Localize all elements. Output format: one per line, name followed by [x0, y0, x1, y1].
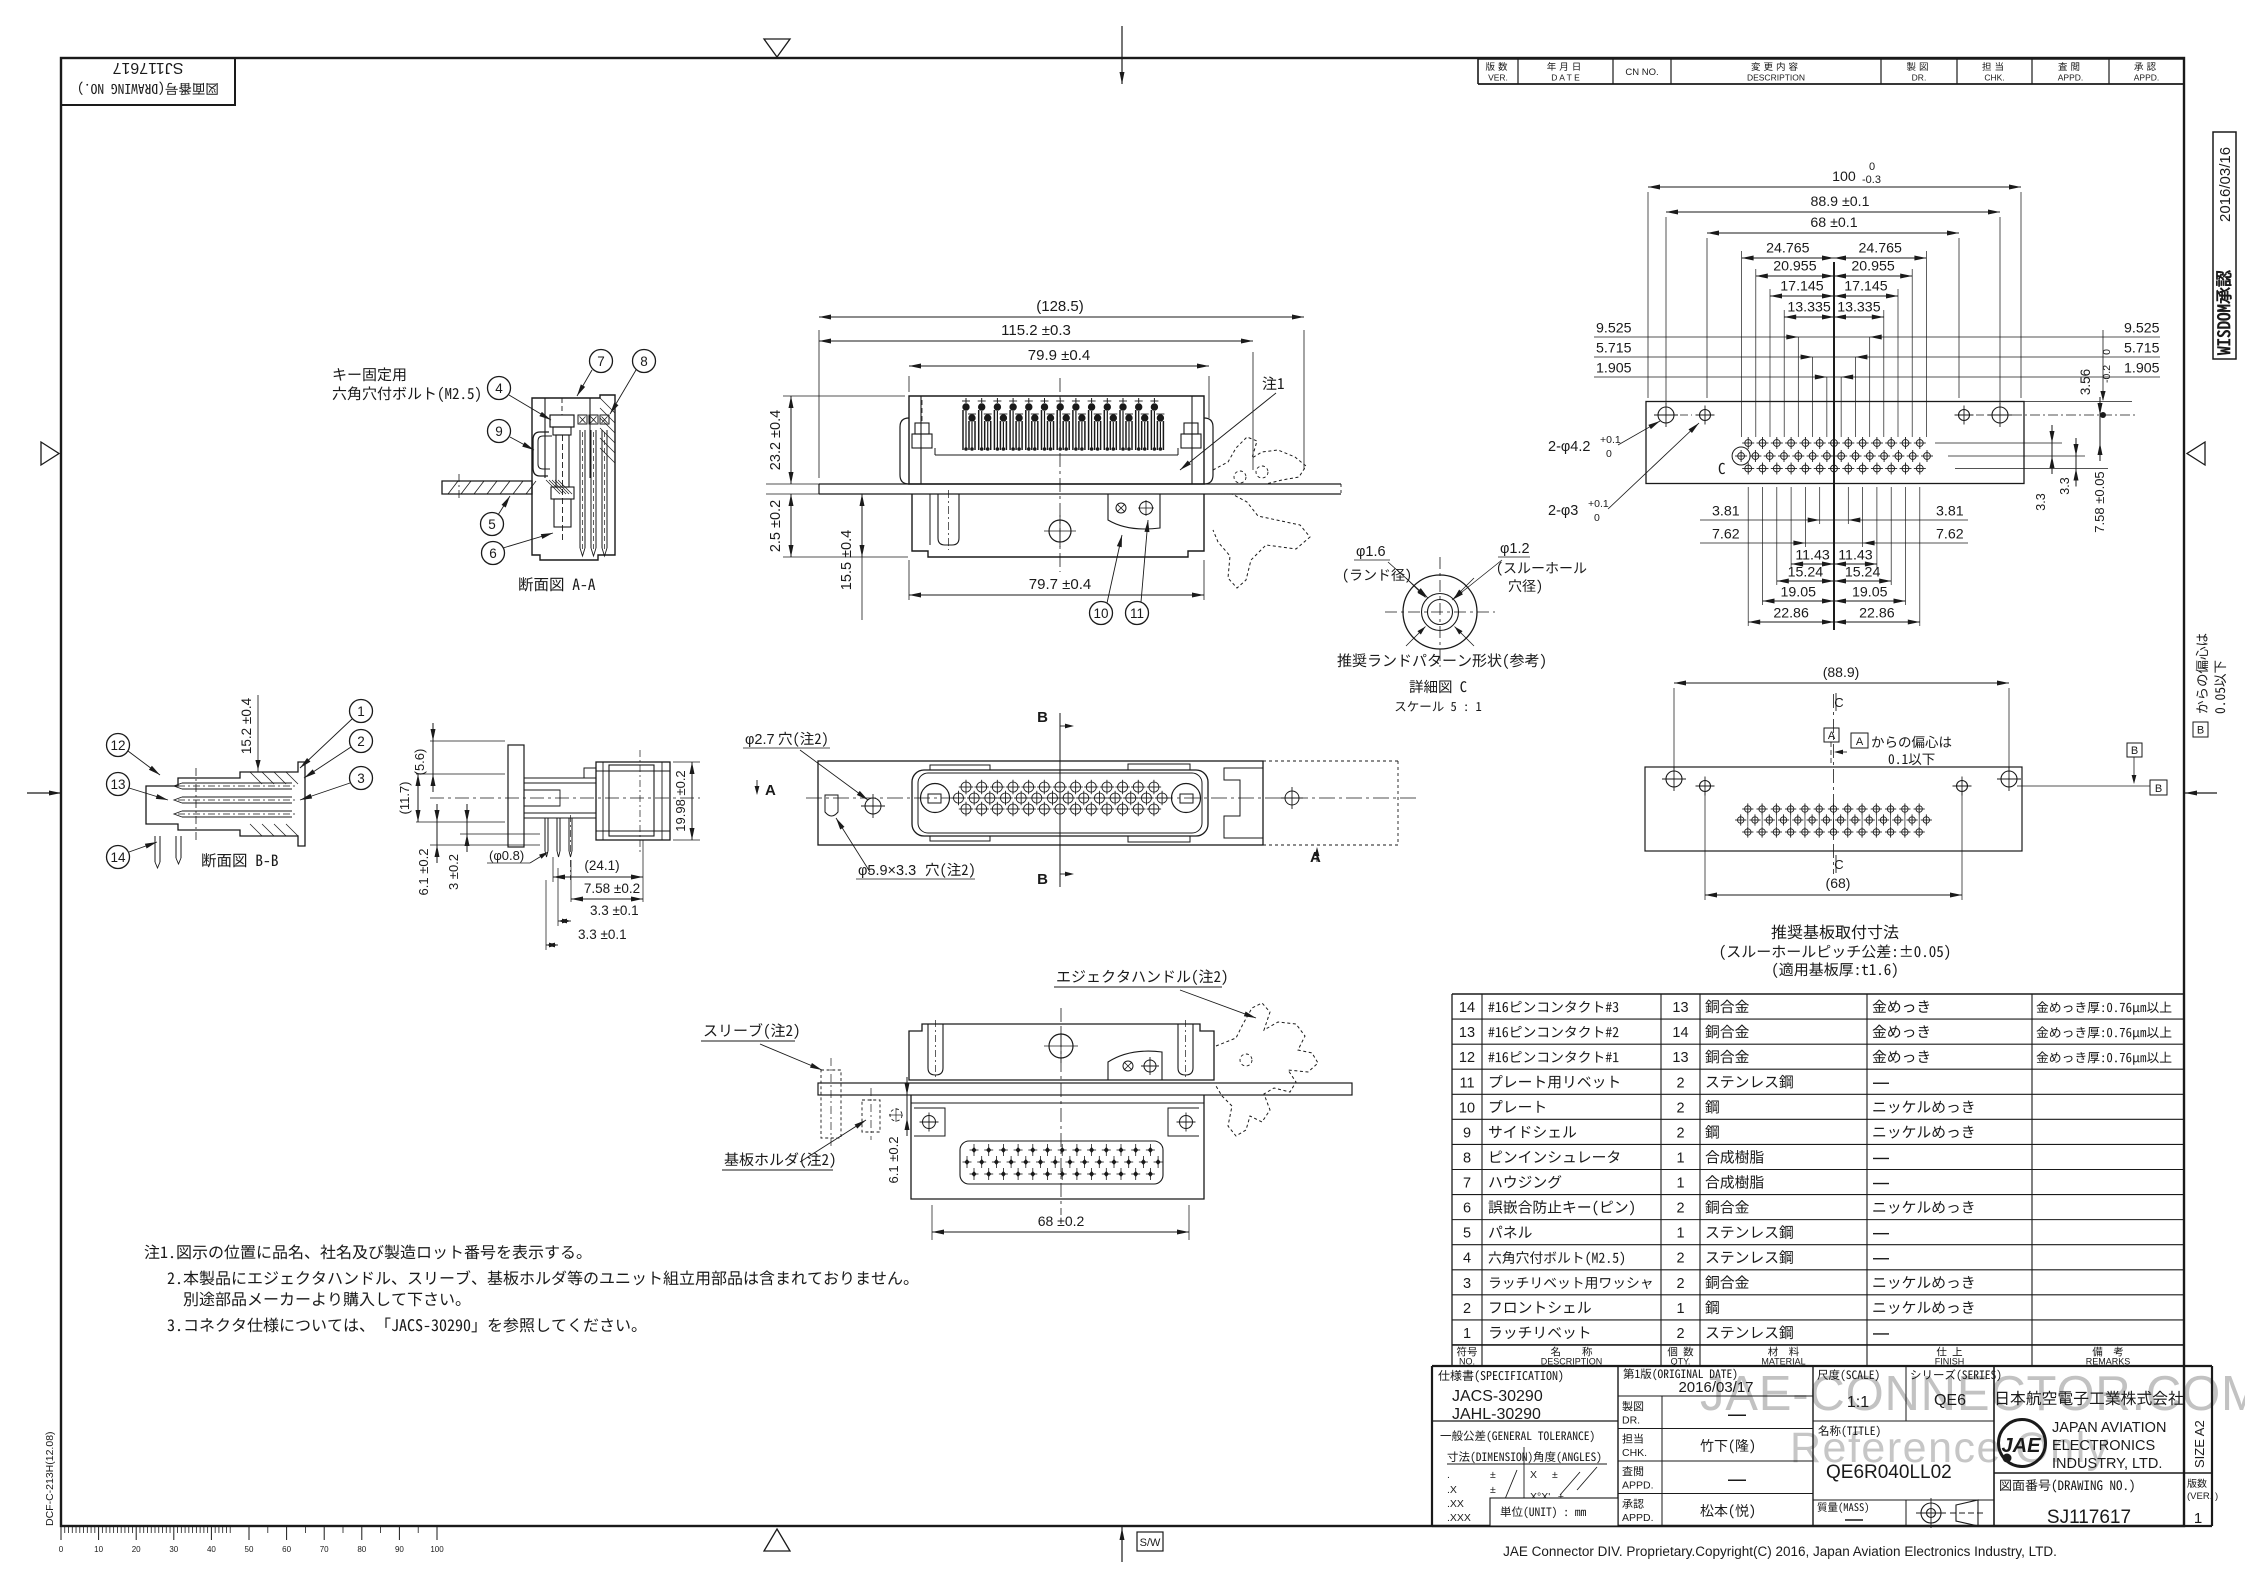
svg-text:90: 90 — [395, 1545, 404, 1554]
svg-text:3.81: 3.81 — [1712, 504, 1740, 520]
svg-text:14: 14 — [1672, 1025, 1688, 1041]
svg-text:JACS-30290: JACS-30290 — [1452, 1388, 1543, 1405]
svg-text:2016/03/17: 2016/03/17 — [1678, 1379, 1753, 1396]
svg-text:2-φ4.2: 2-φ4.2 — [1548, 439, 1590, 455]
svg-text:23.2 ±0.4: 23.2 ±0.4 — [768, 410, 784, 470]
svg-text:1: 1 — [1676, 1176, 1684, 1192]
svg-text:2: 2 — [1463, 1301, 1471, 1317]
svg-text:22.86: 22.86 — [1859, 606, 1895, 622]
svg-text:88.9 ±0.1: 88.9 ±0.1 — [1810, 194, 1869, 210]
svg-text:79.9 ±0.4: 79.9 ±0.4 — [1028, 347, 1090, 364]
svg-text:30: 30 — [169, 1545, 178, 1554]
svg-text:3.56: 3.56 — [2078, 369, 2093, 395]
svg-text:B: B — [2155, 783, 2162, 795]
svg-text:5: 5 — [488, 517, 496, 532]
svg-text:.: . — [1447, 1469, 1450, 1481]
svg-text:A: A — [1828, 730, 1836, 742]
svg-text:DR.: DR. — [1912, 73, 1927, 83]
svg-text:.XXX: .XXX — [1447, 1512, 1471, 1524]
svg-text:9.525: 9.525 — [2124, 321, 2160, 337]
svg-text:2016/03/16: 2016/03/16 — [2217, 147, 2234, 222]
svg-text:2: 2 — [1676, 1276, 1684, 1292]
svg-text:10: 10 — [94, 1545, 103, 1554]
svg-text:2: 2 — [1676, 1100, 1684, 1116]
svg-text:B: B — [2131, 745, 2138, 757]
svg-text:(11.7): (11.7) — [397, 782, 412, 815]
svg-text:SJ117617: SJ117617 — [112, 59, 183, 76]
svg-text:100: 100 — [1832, 169, 1856, 185]
svg-text:0: 0 — [1606, 448, 1612, 460]
svg-text:2: 2 — [357, 734, 365, 749]
svg-text:φ1.6: φ1.6 — [1356, 544, 1386, 560]
svg-text:CN NO.: CN NO. — [1625, 67, 1658, 78]
svg-text:.XX: .XX — [1447, 1498, 1464, 1510]
svg-text:1: 1 — [1676, 1301, 1684, 1317]
svg-text:1: 1 — [1676, 1150, 1684, 1166]
svg-text:24.765: 24.765 — [1858, 241, 1902, 257]
svg-text:±: ± — [1490, 1469, 1496, 1481]
svg-text:4: 4 — [495, 381, 503, 396]
svg-text:40: 40 — [207, 1545, 216, 1554]
svg-text:22.86: 22.86 — [1773, 606, 1809, 622]
svg-text:14: 14 — [110, 850, 126, 865]
svg-text:1: 1 — [1676, 1226, 1684, 1242]
svg-text:SIZE A2: SIZE A2 — [2192, 1420, 2207, 1468]
svg-text:11.43: 11.43 — [1795, 548, 1830, 564]
svg-text:4: 4 — [1463, 1251, 1471, 1267]
svg-text:3.3 ±0.1: 3.3 ±0.1 — [590, 903, 639, 918]
svg-text:X: X — [1530, 1469, 1537, 1481]
svg-text:13: 13 — [1672, 1050, 1688, 1066]
svg-text:VER.: VER. — [1488, 73, 1508, 83]
svg-text:11: 11 — [1130, 606, 1144, 621]
svg-text:2: 2 — [1676, 1251, 1684, 1267]
svg-text:INDUSTRY, LTD.: INDUSTRY, LTD. — [2052, 1456, 2162, 1472]
svg-text:3.3: 3.3 — [2034, 493, 2048, 510]
svg-text:ELECTRONICS: ELECTRONICS — [2052, 1438, 2155, 1454]
svg-text:2.5 ±0.2: 2.5 ±0.2 — [768, 500, 784, 552]
svg-text:APPD.: APPD. — [2058, 73, 2084, 83]
svg-text:JAE Connector DIV. Proprietary: JAE Connector DIV. Proprietary.Copyright… — [1503, 1544, 2057, 1559]
svg-text:9: 9 — [495, 424, 503, 439]
svg-text:3: 3 — [357, 771, 365, 786]
svg-text:-0.3: -0.3 — [1862, 174, 1881, 186]
svg-text:20.955: 20.955 — [1773, 259, 1817, 275]
svg-text:1.905: 1.905 — [2124, 361, 2160, 377]
svg-text:24.765: 24.765 — [1766, 241, 1810, 257]
svg-text:3: 3 — [1463, 1276, 1471, 1292]
svg-text:7.62: 7.62 — [1712, 527, 1740, 543]
svg-text:3.3 ±0.1: 3.3 ±0.1 — [578, 927, 627, 942]
svg-text:.X: .X — [1447, 1484, 1457, 1496]
svg-text:15.5 ±0.4: 15.5 ±0.4 — [839, 530, 855, 590]
svg-text:7: 7 — [597, 354, 605, 369]
svg-text:(VER. ): (VER. ) — [2187, 1491, 2218, 1502]
svg-text:(68): (68) — [1826, 875, 1851, 891]
svg-text:9.525: 9.525 — [1596, 321, 1632, 337]
svg-text:20.955: 20.955 — [1851, 259, 1895, 275]
svg-text:13: 13 — [1672, 1000, 1688, 1016]
svg-text:DCF-C-213H(12.08): DCF-C-213H(12.08) — [44, 1431, 56, 1526]
svg-text:JAPAN AVIATION: JAPAN AVIATION — [2052, 1420, 2166, 1436]
svg-text:(128.5): (128.5) — [1036, 298, 1084, 315]
svg-text:φ2.7: φ2.7 — [745, 732, 775, 748]
svg-text:8: 8 — [1463, 1150, 1471, 1166]
svg-text:80: 80 — [357, 1545, 366, 1554]
svg-text:6: 6 — [489, 546, 497, 561]
svg-text:68 ±0.2: 68 ±0.2 — [1038, 1213, 1085, 1229]
svg-text:3.81: 3.81 — [1936, 504, 1964, 520]
svg-text:12: 12 — [1459, 1050, 1475, 1066]
svg-text:6.1 ±0.2: 6.1 ±0.2 — [886, 1137, 901, 1184]
svg-text:B: B — [1037, 871, 1048, 888]
svg-text:2: 2 — [1676, 1201, 1684, 1217]
svg-text:60: 60 — [282, 1545, 291, 1554]
svg-text:φ5.9×3.3: φ5.9×3.3 — [858, 863, 916, 879]
svg-text:14: 14 — [1459, 1000, 1475, 1016]
svg-text:A: A — [765, 782, 776, 799]
svg-text:115.2 ±0.3: 115.2 ±0.3 — [1001, 322, 1071, 339]
svg-text:2: 2 — [1676, 1075, 1684, 1091]
svg-text:1.905: 1.905 — [1596, 361, 1632, 377]
svg-text:17.145: 17.145 — [1844, 279, 1888, 295]
svg-text:2-φ3: 2-φ3 — [1548, 503, 1578, 519]
svg-text:19.05: 19.05 — [1780, 585, 1816, 601]
svg-text:5.715: 5.715 — [1596, 341, 1632, 357]
svg-text:CHK.: CHK. — [1984, 73, 2004, 83]
svg-text:70: 70 — [320, 1545, 329, 1554]
svg-text:(5.6): (5.6) — [412, 749, 427, 776]
svg-text:10: 10 — [1459, 1100, 1475, 1116]
svg-text:7.62: 7.62 — [1936, 527, 1964, 543]
svg-text:7.58 ±0.2: 7.58 ±0.2 — [584, 881, 640, 896]
svg-text:(φ0.8): (φ0.8) — [489, 848, 524, 863]
svg-text:-0.2: -0.2 — [2101, 365, 2113, 383]
svg-text:JAHL-30290: JAHL-30290 — [1452, 1406, 1541, 1423]
svg-text:±: ± — [1552, 1469, 1558, 1481]
svg-text:+0.1: +0.1 — [1588, 498, 1609, 510]
svg-text:φ1.2: φ1.2 — [1500, 541, 1530, 557]
svg-text:7.58 ±0.05: 7.58 ±0.05 — [2092, 471, 2107, 532]
svg-text:9: 9 — [1463, 1125, 1471, 1141]
svg-text:QE6R040LL02: QE6R040LL02 — [1826, 1462, 1952, 1483]
svg-text:5.715: 5.715 — [2124, 341, 2160, 357]
svg-text:DR.: DR. — [1622, 1414, 1640, 1426]
svg-text:17.145: 17.145 — [1780, 279, 1824, 295]
svg-text:QE6: QE6 — [1934, 1392, 1966, 1409]
svg-text:0: 0 — [1869, 161, 1875, 173]
svg-text:B: B — [1037, 709, 1048, 726]
svg-text:1: 1 — [1463, 1326, 1471, 1342]
svg-text:APPD.: APPD. — [1622, 1512, 1654, 1524]
svg-text:0: 0 — [2101, 349, 2113, 355]
svg-text:±: ± — [1490, 1484, 1496, 1496]
svg-text:1: 1 — [2194, 1510, 2202, 1527]
svg-text:15.24: 15.24 — [1845, 565, 1881, 581]
svg-text:APPD.: APPD. — [1622, 1479, 1654, 1491]
svg-text:0: 0 — [1594, 512, 1600, 524]
svg-text:APPD.: APPD. — [2134, 73, 2160, 83]
svg-text:79.7 ±0.4: 79.7 ±0.4 — [1029, 576, 1091, 593]
svg-text:A: A — [1310, 849, 1321, 866]
svg-text:5: 5 — [1463, 1226, 1471, 1242]
svg-text:13.335: 13.335 — [1837, 300, 1881, 316]
svg-text:B: B — [2197, 725, 2204, 737]
svg-text:100: 100 — [430, 1545, 444, 1554]
svg-text:68 ±0.1: 68 ±0.1 — [1810, 215, 1857, 231]
svg-text:13: 13 — [110, 777, 125, 792]
svg-text:15.24: 15.24 — [1788, 565, 1824, 581]
svg-text:DESCRIPTION: DESCRIPTION — [1747, 73, 1805, 83]
svg-text:19.98 ±0.2: 19.98 ±0.2 — [673, 770, 688, 831]
svg-text:7: 7 — [1463, 1176, 1471, 1192]
svg-text:1: 1 — [357, 704, 365, 719]
svg-text:D A T E: D A T E — [1551, 73, 1580, 83]
svg-text:12: 12 — [110, 738, 125, 753]
svg-text:SJ117617: SJ117617 — [2047, 1507, 2131, 1528]
svg-text:3 ±0.2: 3 ±0.2 — [446, 854, 461, 890]
svg-text:13.335: 13.335 — [1787, 300, 1831, 316]
svg-text:CHK.: CHK. — [1622, 1447, 1647, 1459]
svg-text:10: 10 — [1093, 606, 1108, 621]
svg-text:2: 2 — [1676, 1125, 1684, 1141]
svg-text:11.43: 11.43 — [1838, 548, 1873, 564]
svg-text:S/W: S/W — [1140, 1537, 1161, 1549]
svg-text:(24.1): (24.1) — [584, 858, 619, 873]
svg-text:6.1 ±0.2: 6.1 ±0.2 — [416, 849, 431, 896]
svg-text:13: 13 — [1459, 1025, 1475, 1041]
svg-text:1:1: 1:1 — [1847, 1394, 1869, 1411]
svg-text:2: 2 — [1676, 1326, 1684, 1342]
svg-text:15.2 ±0.4: 15.2 ±0.4 — [239, 697, 254, 754]
svg-text:19.05: 19.05 — [1852, 585, 1888, 601]
svg-text:0: 0 — [59, 1545, 64, 1554]
svg-text:3.3: 3.3 — [2058, 477, 2072, 494]
svg-text:11: 11 — [1459, 1075, 1474, 1091]
svg-text:(88.9): (88.9) — [1823, 664, 1860, 680]
svg-text:6: 6 — [1463, 1201, 1471, 1217]
svg-text:20: 20 — [132, 1545, 141, 1554]
svg-text:8: 8 — [640, 354, 648, 369]
svg-text:+0.1: +0.1 — [1600, 434, 1621, 446]
svg-text:A: A — [1856, 736, 1864, 748]
svg-text:50: 50 — [245, 1545, 254, 1554]
